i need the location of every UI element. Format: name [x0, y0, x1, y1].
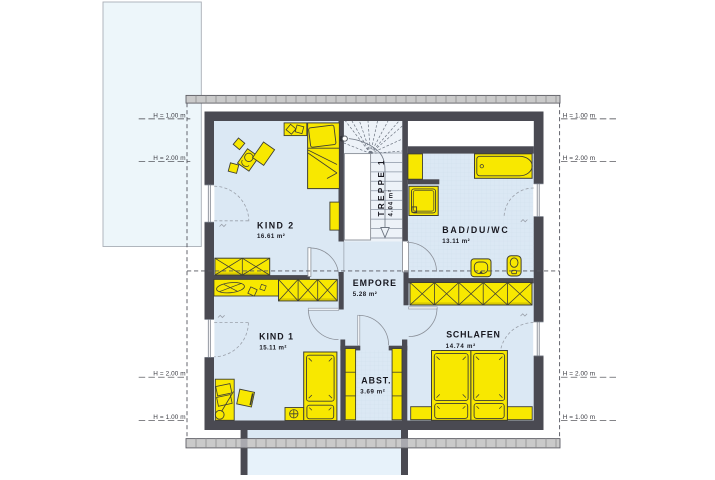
svg-text:H = 2.00 m: H = 2.00 m: [153, 155, 185, 162]
svg-text:TREPPE 1: TREPPE 1: [377, 158, 386, 216]
svg-text:H = 1.00 m: H = 1.00 m: [563, 112, 595, 119]
svg-text:15.11 m²: 15.11 m²: [259, 345, 286, 352]
svg-text:KIND 2: KIND 2: [257, 220, 295, 230]
svg-text:5.28 m²: 5.28 m²: [353, 291, 378, 298]
svg-text:H = 1.00 m: H = 1.00 m: [563, 414, 595, 421]
svg-text:14.74 m²: 14.74 m²: [446, 343, 476, 350]
svg-text:H = 1.00 m: H = 1.00 m: [153, 112, 185, 119]
svg-text:4.04 m²: 4.04 m²: [388, 189, 395, 217]
svg-text:H = 2.00 m: H = 2.00 m: [563, 370, 595, 377]
svg-text:16.61 m²: 16.61 m²: [257, 233, 285, 240]
svg-text:H = 2.00 m: H = 2.00 m: [153, 370, 185, 377]
svg-text:H = 2.00 m: H = 2.00 m: [563, 155, 595, 162]
svg-text:ABST.: ABST.: [361, 375, 391, 385]
svg-text:KIND 1: KIND 1: [259, 331, 294, 341]
svg-text:H = 1.00 m: H = 1.00 m: [153, 414, 185, 421]
svg-text:3.69 m²: 3.69 m²: [360, 389, 385, 396]
svg-text:13.11 m²: 13.11 m²: [442, 238, 470, 245]
svg-text:BAD/DU/WC: BAD/DU/WC: [442, 225, 509, 235]
svg-text:EMPORE: EMPORE: [353, 278, 397, 288]
svg-text:SCHLAFEN: SCHLAFEN: [446, 330, 501, 340]
